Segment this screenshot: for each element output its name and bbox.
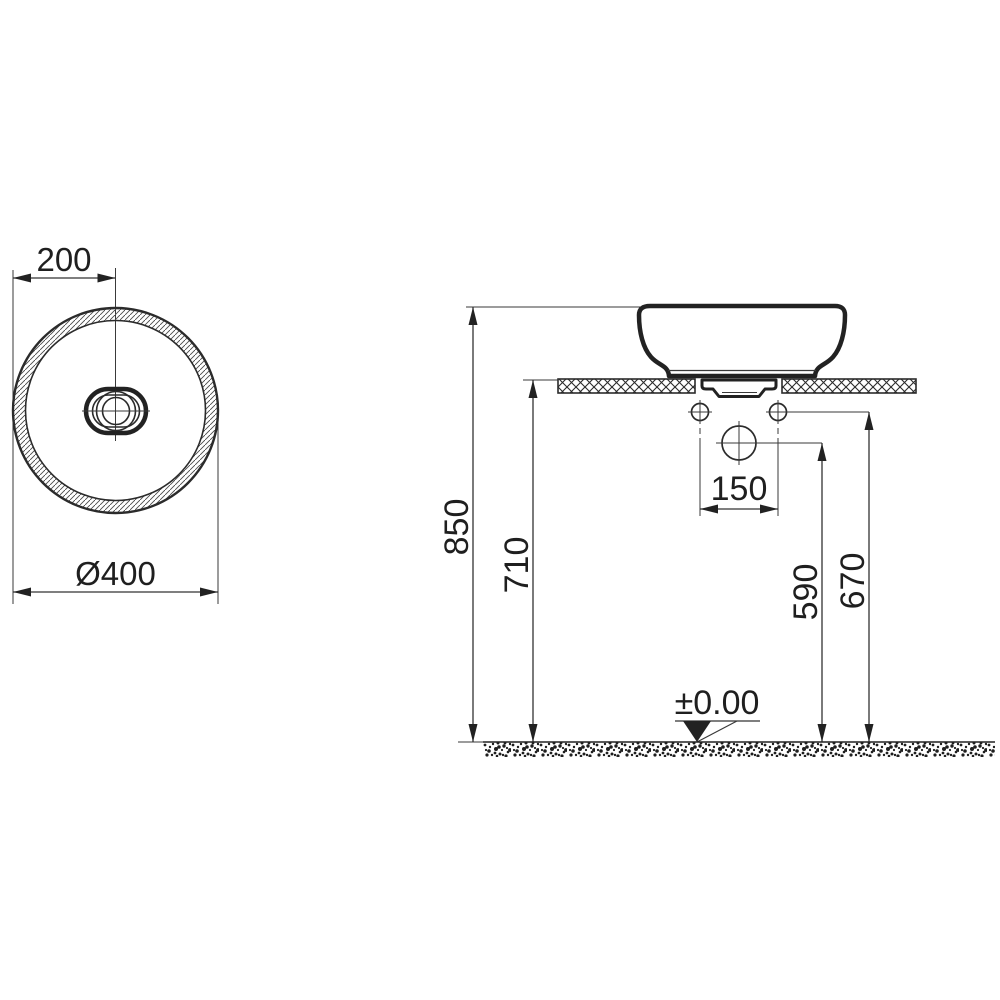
countertop-right-section <box>782 379 916 393</box>
dimension-label-diameter: Ø400 <box>75 555 156 592</box>
dimension-150: 150 <box>700 470 778 514</box>
technical-drawing-canvas: 200 Ø400 850 <box>0 0 1000 1000</box>
floor <box>483 742 995 757</box>
countertop-left-section <box>558 379 695 393</box>
dimension-label-590: 590 <box>787 564 825 621</box>
dimension-label-670: 670 <box>834 553 872 610</box>
floor-speckle-band <box>483 742 995 757</box>
dimension-label-850: 850 <box>438 499 476 556</box>
dimension-label-200: 200 <box>36 241 91 278</box>
drain-top-view <box>82 389 150 433</box>
datum-label: ±0.00 <box>675 684 760 722</box>
washbasin-dimension-drawing: 200 Ø400 850 <box>0 0 1000 1000</box>
dimension-label-150: 150 <box>711 470 768 508</box>
dimension-label-710: 710 <box>498 537 536 594</box>
